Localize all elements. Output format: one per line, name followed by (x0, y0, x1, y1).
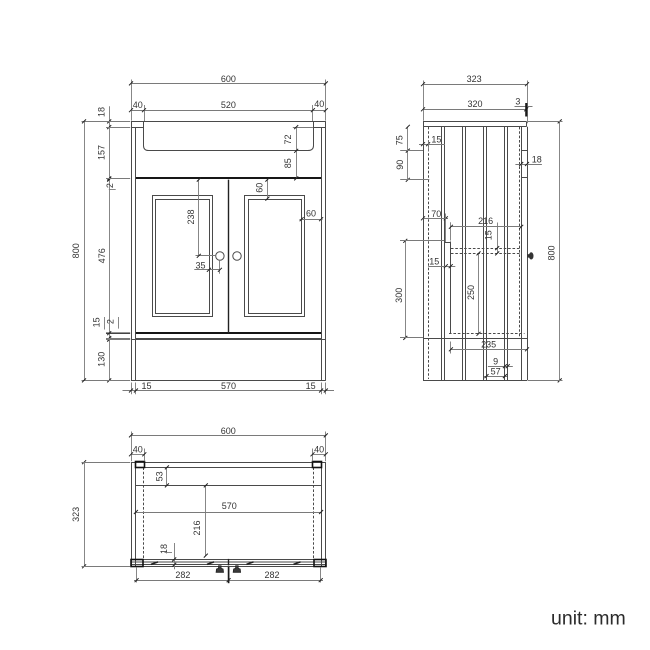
svg-text:15: 15 (141, 381, 151, 391)
svg-text:40: 40 (314, 99, 324, 109)
svg-text:320: 320 (467, 99, 482, 109)
svg-text:90: 90 (395, 160, 405, 170)
svg-text:35: 35 (195, 260, 205, 270)
svg-text:600: 600 (221, 74, 236, 84)
svg-text:800: 800 (546, 245, 556, 260)
svg-text:18: 18 (96, 107, 106, 117)
svg-text:40: 40 (314, 444, 324, 454)
svg-text:70: 70 (431, 209, 441, 219)
svg-text:15: 15 (306, 381, 316, 391)
svg-text:40: 40 (133, 100, 143, 110)
svg-text:53: 53 (154, 471, 164, 481)
svg-text:15: 15 (431, 134, 441, 144)
svg-text:282: 282 (264, 570, 279, 580)
svg-text:57: 57 (491, 366, 501, 376)
svg-text:85: 85 (283, 158, 293, 168)
svg-text:520: 520 (221, 100, 236, 110)
svg-text:2: 2 (106, 319, 116, 324)
svg-text:15: 15 (483, 230, 493, 240)
svg-text:216: 216 (192, 520, 202, 535)
svg-text:323: 323 (71, 507, 81, 522)
svg-text:282: 282 (175, 570, 190, 580)
svg-text:15: 15 (429, 257, 439, 267)
svg-text:3: 3 (515, 96, 520, 106)
svg-text:75: 75 (395, 135, 405, 145)
svg-text:2: 2 (105, 183, 115, 188)
svg-text:476: 476 (97, 248, 107, 263)
svg-text:235: 235 (481, 340, 496, 350)
svg-text:60: 60 (306, 209, 316, 219)
svg-text:570: 570 (222, 501, 237, 511)
svg-text:15: 15 (92, 317, 102, 327)
svg-text:600: 600 (221, 426, 236, 436)
svg-text:18: 18 (532, 154, 542, 164)
svg-text:72: 72 (283, 134, 293, 144)
svg-text:323: 323 (467, 74, 482, 84)
svg-text:570: 570 (221, 381, 236, 391)
svg-text:9: 9 (493, 356, 498, 366)
svg-text:157: 157 (96, 145, 106, 160)
svg-text:800: 800 (71, 243, 81, 258)
svg-text:300: 300 (394, 288, 404, 303)
svg-text:40: 40 (133, 444, 143, 454)
svg-text:238: 238 (186, 209, 196, 224)
svg-text:130: 130 (97, 352, 107, 367)
svg-text:216: 216 (478, 216, 493, 226)
svg-text:unit: mm: unit: mm (551, 608, 626, 630)
svg-text:60: 60 (255, 183, 265, 193)
svg-text:250: 250 (466, 285, 476, 300)
